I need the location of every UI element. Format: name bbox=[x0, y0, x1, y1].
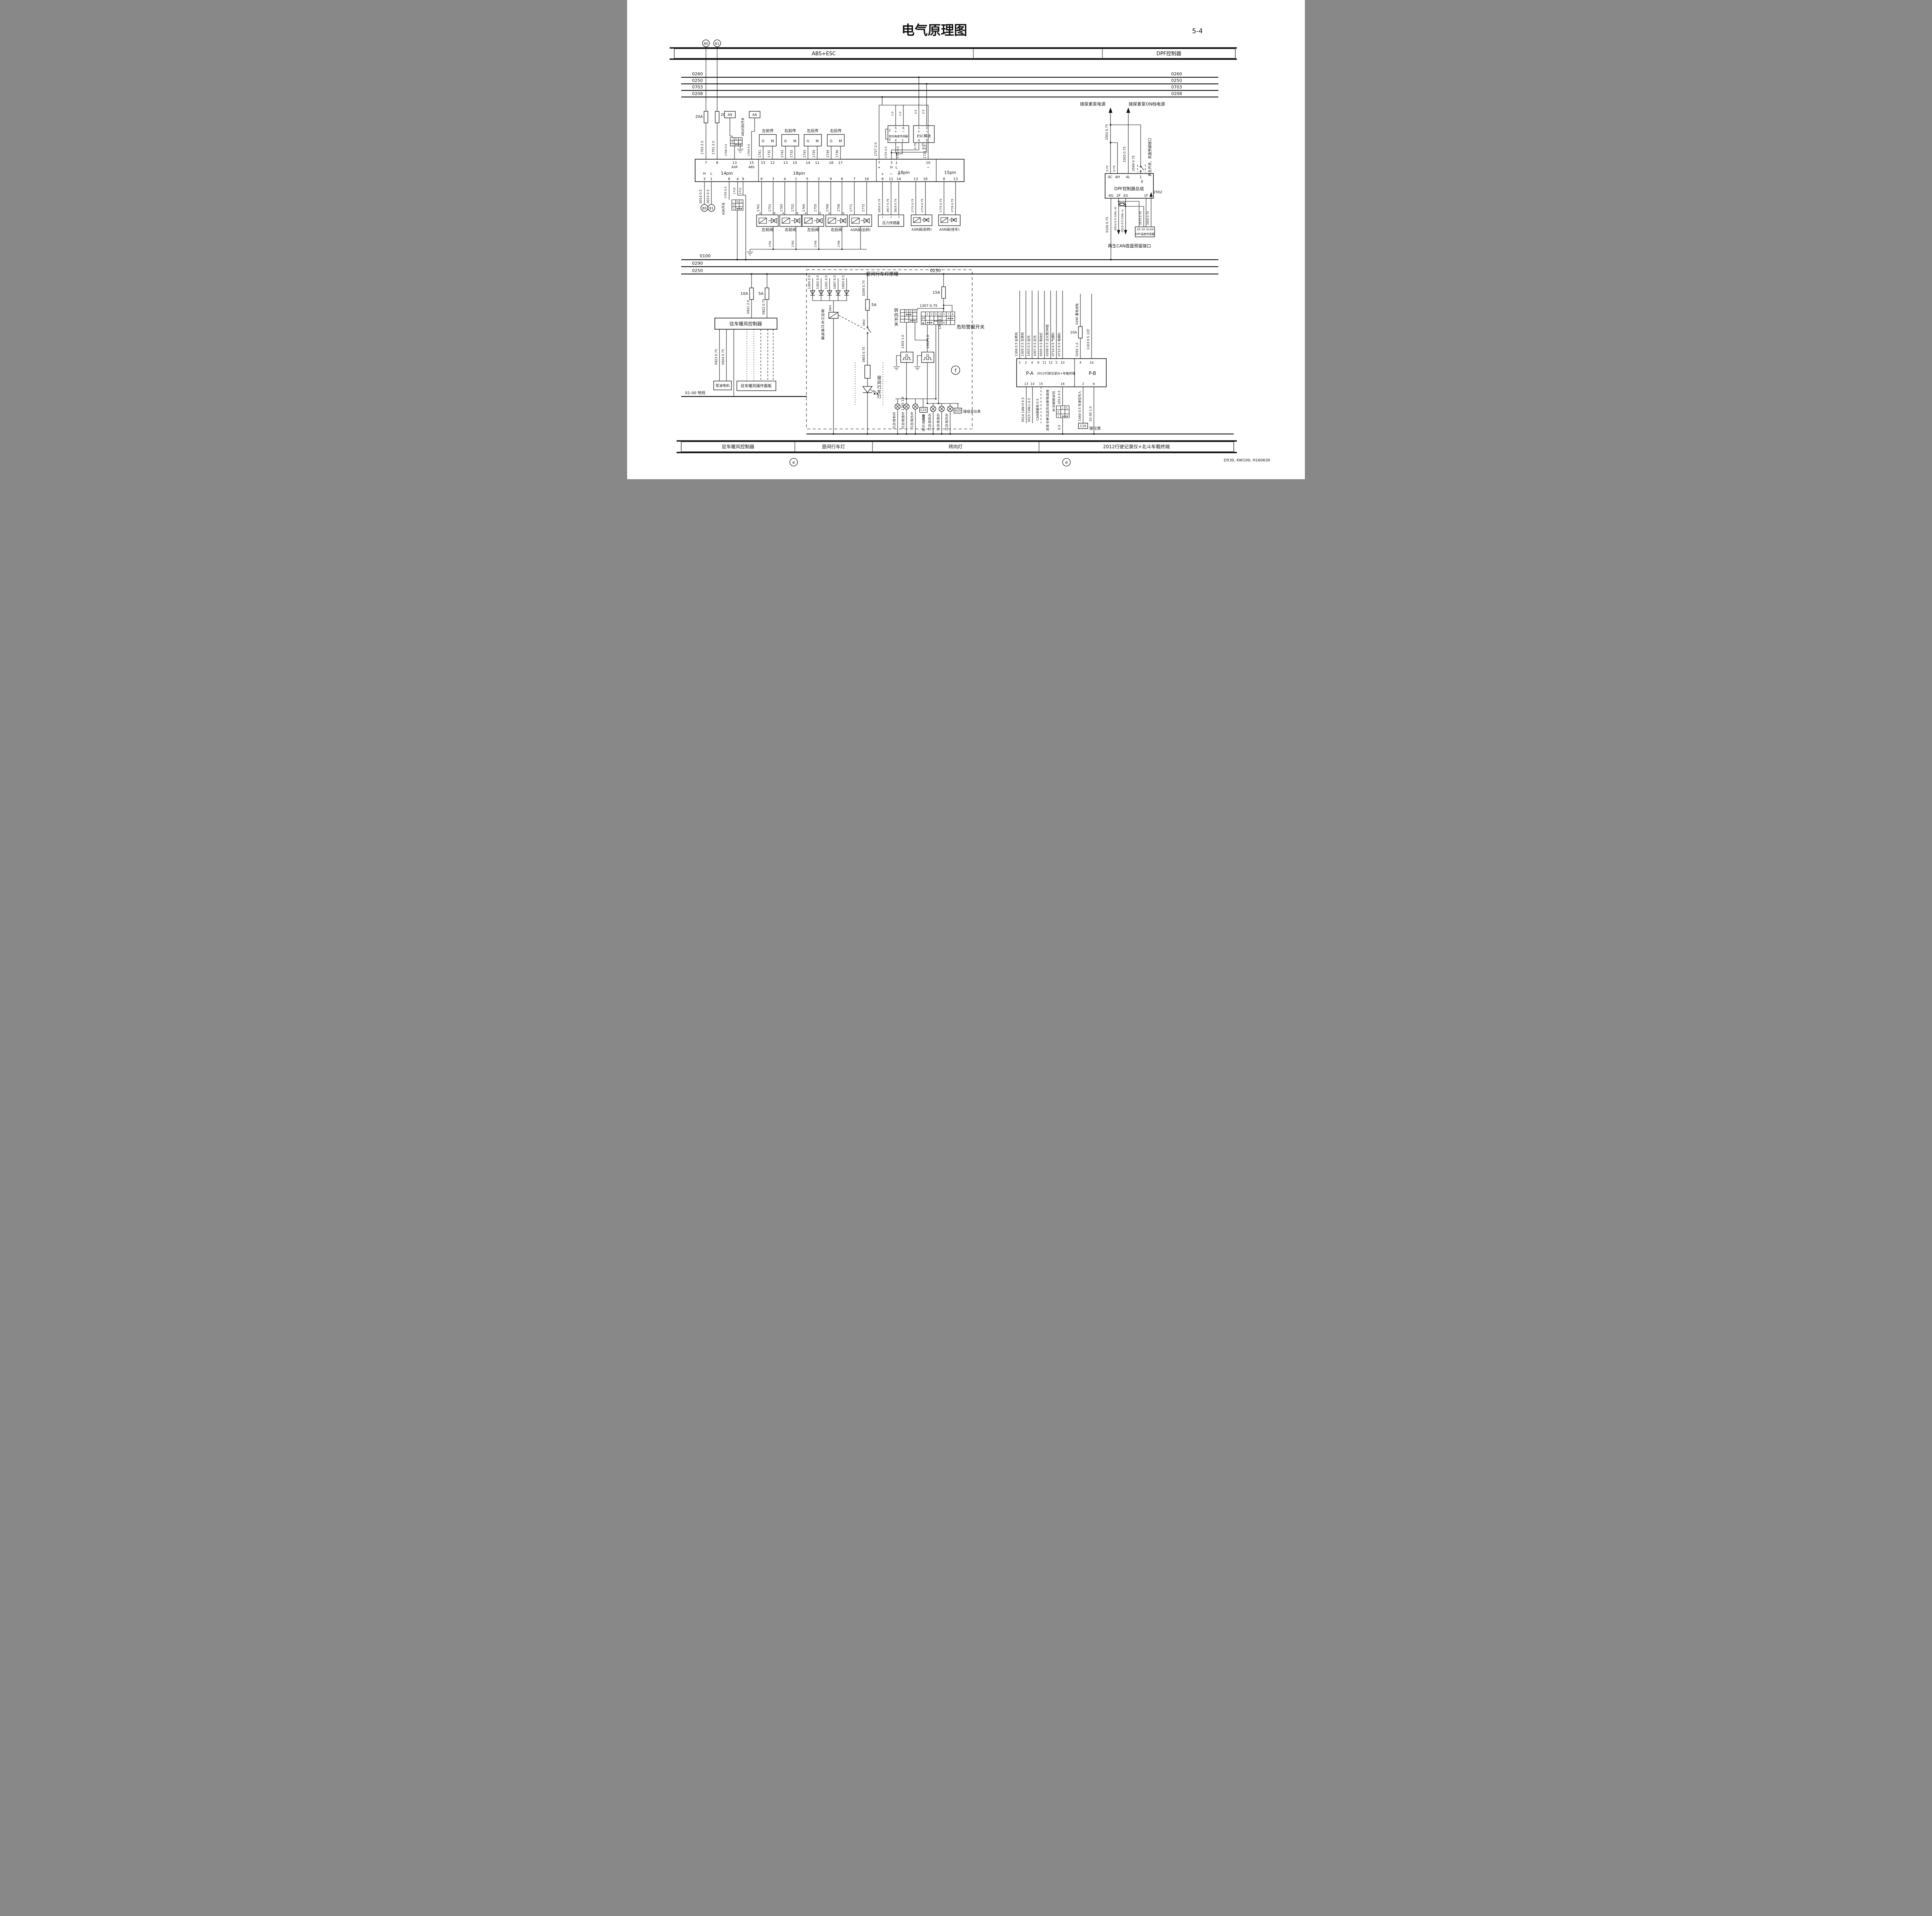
pin: 13 bbox=[913, 177, 918, 181]
pin: 15 bbox=[1039, 382, 1043, 386]
pin-g: G bbox=[830, 140, 833, 143]
wire-1791: 1791 bbox=[769, 240, 772, 247]
wire-0015: 0015 0.5 bbox=[706, 189, 710, 203]
dpf-section: 接尿素泵电源 接尿素泵ON档电源 2502 0.75 2503 0.75 0.7… bbox=[1080, 101, 1165, 260]
pa: P-A bbox=[1026, 371, 1034, 376]
sensor-name: 右前传 bbox=[784, 128, 796, 133]
pin: 13 bbox=[732, 161, 736, 165]
wire-0014: 0014 0.5 bbox=[699, 189, 702, 203]
pin-m: M bbox=[793, 140, 796, 143]
pin: 11 bbox=[1043, 361, 1046, 364]
asr-valve-trailer: 1775 0.75 1776 0.75 ASR阀(挂车) bbox=[939, 182, 960, 232]
e: E bbox=[774, 212, 776, 215]
connector-a29-label: A29 bbox=[955, 409, 961, 412]
pin: 12 bbox=[770, 161, 774, 165]
col: 3 bbox=[906, 310, 907, 313]
regen-switch bbox=[1138, 164, 1145, 174]
esc-module: 1 2 + − ESC模块 4 3 2.5 2.5 bbox=[913, 77, 934, 143]
pin: 9 bbox=[1037, 361, 1039, 364]
drl-dashed-box bbox=[806, 270, 972, 429]
wire-1103: 1103 0.5 小灯 bbox=[1086, 329, 1090, 350]
bus-0703-left: 0703 bbox=[692, 85, 703, 90]
e: E bbox=[820, 212, 821, 215]
name: ASR阀(前桥) bbox=[912, 227, 932, 232]
col: 1 bbox=[910, 310, 912, 313]
cell: 5 bbox=[1066, 407, 1068, 410]
footer-drl: 昼间行车灯 bbox=[822, 444, 845, 449]
wire-2012: 2012 0.5 bbox=[1058, 390, 1061, 404]
a: A bbox=[759, 212, 761, 215]
pin: 8 bbox=[841, 177, 843, 181]
wire: 1771 bbox=[849, 204, 853, 212]
wire-3801: 3801 bbox=[829, 305, 832, 311]
bus-0208-left: 0208 bbox=[692, 91, 703, 96]
warn-triangle: ▲ bbox=[922, 322, 924, 324]
cell: 1 bbox=[1058, 415, 1059, 417]
bottom-ground bbox=[806, 433, 1234, 435]
g: G bbox=[926, 354, 929, 358]
wire-0209: 0209 0.75 bbox=[862, 280, 866, 296]
wire: 1007 0.5 近光 bbox=[1033, 335, 1037, 356]
terminal-80: 80 bbox=[702, 207, 707, 211]
hazard-label: 危险警报开关 bbox=[957, 324, 985, 330]
wire: 0.75 bbox=[1106, 165, 1109, 172]
to-cluster-right: 接组合仪表 bbox=[963, 409, 981, 414]
wire: 1745 bbox=[803, 150, 806, 158]
pin: 17 bbox=[838, 161, 842, 165]
18pin: 18pin bbox=[793, 171, 805, 176]
wire-0922: 0922 0.75 bbox=[762, 299, 765, 315]
pin: 2 bbox=[1082, 382, 1084, 386]
pin: 6 bbox=[760, 177, 763, 181]
col: 3 bbox=[935, 313, 937, 316]
wire: 0505 0.5 制动灯 bbox=[1039, 332, 1043, 356]
wire-2503: 2503 0.75 bbox=[1123, 146, 1126, 162]
col: 7 bbox=[947, 313, 949, 316]
connector-c22-label: C22 bbox=[920, 408, 927, 412]
h: H bbox=[890, 166, 893, 170]
doc-code: D530, KW100, H160630 bbox=[1224, 458, 1270, 463]
cell: 0 bbox=[1058, 411, 1059, 413]
pin: 8 bbox=[716, 161, 718, 165]
wire: 0.75 bbox=[1113, 165, 1116, 172]
plus: + bbox=[881, 172, 884, 176]
wire: 1755 bbox=[814, 204, 817, 212]
dpf-temp-sensor: 03 02 01 04 DPF温度传感器 bbox=[1135, 227, 1155, 237]
pin: 4 bbox=[1031, 361, 1033, 364]
terminal-81-label: 81 bbox=[715, 42, 719, 46]
name: ASR阀(挂车) bbox=[939, 227, 959, 232]
pin: 01 bbox=[1146, 228, 1150, 231]
abs-valves: 1761 1751 1762 1752 1765 1755 1766 1756 … bbox=[747, 182, 872, 255]
wire-can-h: 0014 0.5 CAN—H bbox=[1114, 207, 1117, 230]
valve-name: 右前阀 bbox=[785, 227, 796, 232]
connector-c19-label: C19 bbox=[1080, 424, 1086, 428]
pin-e: E bbox=[1141, 180, 1143, 184]
pin: 2F bbox=[1117, 194, 1121, 198]
pin: 4 bbox=[784, 177, 786, 181]
pin-m: M bbox=[839, 140, 842, 143]
pin: 4H bbox=[1115, 175, 1120, 179]
plus: + bbox=[895, 130, 897, 133]
asr-valve-front: 1773 0.75 1774 0.75 ASR阀(前桥) bbox=[911, 182, 932, 232]
header-section-abs-esc: ABS+ESC bbox=[812, 51, 836, 57]
pin: 3 bbox=[890, 161, 893, 165]
pin-g: G bbox=[807, 140, 810, 143]
arrow-2502-label: 2502 bbox=[1153, 191, 1162, 194]
fuse-20a-2 bbox=[715, 111, 719, 123]
wire-2599: 2599 0.75 bbox=[1132, 155, 1135, 171]
col: 2 bbox=[931, 313, 932, 316]
ground-bus-0100: 0100 bbox=[681, 254, 1218, 260]
pin: 2 bbox=[925, 126, 927, 130]
wire-0923: 0923 0.75 bbox=[714, 349, 718, 365]
wire: 0715 0.5 电喇叭 bbox=[1057, 332, 1061, 356]
pin: 9 bbox=[742, 177, 744, 181]
wire: 1007 0.5 bbox=[833, 275, 837, 289]
drl-relay: 昼间行车灯继电器 bbox=[820, 309, 838, 434]
valve-name: 左后阀 bbox=[807, 227, 819, 232]
a: A bbox=[782, 212, 784, 215]
ground-wire-label: 01-00 地线 bbox=[685, 390, 705, 395]
pin: 15 bbox=[761, 161, 765, 165]
footer-heater: 驻车暖风控制器 bbox=[722, 444, 754, 449]
pin: 6 bbox=[902, 126, 904, 130]
wire: 1.0 bbox=[899, 112, 902, 116]
lamp-name: 右前转向灯 bbox=[928, 413, 932, 431]
pin: 02 bbox=[1142, 228, 1145, 231]
pin: 1F bbox=[1144, 194, 1148, 198]
pin: 16 bbox=[1061, 382, 1065, 386]
pin: 5 bbox=[806, 177, 808, 181]
e: E bbox=[843, 212, 844, 215]
pin: 16 bbox=[1090, 361, 1094, 364]
wire: 1773 0.75 bbox=[911, 199, 914, 213]
terminal-80-label: 80 bbox=[704, 42, 708, 46]
a: A bbox=[805, 212, 807, 215]
cell: 1 bbox=[740, 138, 741, 141]
col: 8 bbox=[952, 313, 953, 316]
wire: 1732 bbox=[790, 150, 793, 158]
pin-m: M bbox=[771, 140, 774, 143]
shield-note: 使用屏蔽双绞线时集中接地 bbox=[1046, 389, 1049, 431]
ground-symbol bbox=[914, 367, 920, 370]
pin: 7 bbox=[853, 177, 855, 181]
col: 4 bbox=[939, 313, 941, 316]
wire: 1766 bbox=[826, 204, 829, 212]
asr-switch-grid: 5 1 0 1 bbox=[732, 200, 743, 210]
ground-symbol bbox=[747, 252, 753, 255]
pin: 2 bbox=[1025, 361, 1027, 364]
wire: 2.5 bbox=[922, 110, 925, 114]
valve-name: 右后阀 bbox=[831, 227, 842, 232]
wire: 1752 bbox=[791, 204, 794, 212]
pin: 3 bbox=[925, 139, 927, 142]
minus: − bbox=[927, 166, 930, 170]
drl-relay-label: 昼间行车灯继电器 bbox=[820, 309, 825, 340]
top-bus-lines: 0260 0250 0703 0208 0260 0250 0703 0208 bbox=[681, 71, 1218, 97]
steering-angle-sensor: 5 6 + − 2 3 4 1 转向角度传感器 1.0 1.0 bbox=[886, 105, 909, 143]
wire-2502: 2502 0.75 bbox=[1105, 124, 1109, 140]
pin: 5 bbox=[1055, 361, 1057, 364]
asr: ASR bbox=[731, 165, 738, 169]
page-number: 5-4 bbox=[1192, 27, 1203, 35]
lamp-name: 左后转向灯 bbox=[910, 412, 914, 429]
lamp-name: 右后转向灯 bbox=[945, 413, 949, 431]
h: H bbox=[703, 172, 706, 176]
wire: 1775 0.75 bbox=[939, 199, 942, 213]
wire: 1742 bbox=[781, 150, 784, 158]
wire: 1201 0.5 bbox=[825, 275, 828, 289]
pin-m: M bbox=[816, 140, 819, 143]
name: ESC模块 bbox=[917, 134, 931, 138]
wire: 1765 bbox=[802, 204, 806, 212]
asr-switch-label: ASR开关 bbox=[721, 202, 725, 215]
footer-bar: 驻车暖风控制器 昼间行车灯 转向灯 2012行驶记录仪+北斗车载终端 e e D… bbox=[677, 441, 1270, 466]
marker-e1: e bbox=[793, 460, 795, 465]
cell: 0 bbox=[731, 141, 733, 143]
header-bar bbox=[674, 49, 1235, 58]
col: 2 bbox=[914, 310, 916, 313]
plus: + bbox=[918, 130, 920, 133]
recorder-name: 2012行驶记录仪+车载终端 bbox=[1037, 371, 1075, 375]
cell: 1 bbox=[1062, 407, 1063, 410]
wire-1706: 1706 0.5 bbox=[724, 144, 728, 156]
pin: 6 bbox=[728, 177, 730, 181]
pin: 9 bbox=[830, 177, 832, 181]
wire-0924: 0924 0.75 bbox=[721, 349, 725, 365]
wire: 1731 bbox=[767, 150, 771, 158]
footer-recorder: 2012行驶记录仪+北斗车载终端 bbox=[1103, 444, 1170, 449]
l: L bbox=[895, 166, 897, 170]
wire-1795: 1795 bbox=[814, 240, 817, 247]
pin: 4C bbox=[1108, 175, 1112, 179]
wire: 1305 0.5 左转向 bbox=[1020, 332, 1024, 356]
regen-can-note: 再生CAN底盘预留接口 bbox=[1108, 243, 1151, 248]
recorder-section: P-A 2012行驶记录仪+车载终端 P-B 1 2 4 9 11 12 5 1… bbox=[1014, 291, 1106, 434]
abs-ecu: 7 8 13 15 ASR ABS 14pin H L 3 1 6 4 9 15… bbox=[695, 159, 964, 182]
wire: 2818 0.75 bbox=[894, 199, 897, 213]
wire: 1756 bbox=[837, 204, 840, 212]
wire-05: 0.5 bbox=[1058, 425, 1061, 430]
bus-0260-right: 0260 bbox=[1171, 71, 1182, 77]
14pin: 14pin bbox=[721, 171, 733, 176]
pin: 18 bbox=[829, 161, 833, 165]
wire: 0714 0.5 气喇叭 bbox=[1051, 332, 1055, 356]
abs-flash-switch-label: ABS闪码开关 bbox=[741, 117, 745, 136]
urea-pump-power: 接尿素泵电源 bbox=[1080, 101, 1105, 107]
bus-0100-label: 0100 bbox=[700, 254, 711, 259]
cell: 5 bbox=[735, 138, 737, 141]
pin: 04 bbox=[1150, 228, 1154, 231]
pin: 11 bbox=[815, 161, 819, 165]
wire-1711: 1711 bbox=[739, 187, 742, 194]
pin: 2 bbox=[890, 216, 892, 219]
pin: 03 bbox=[1137, 228, 1141, 231]
pin: 3 bbox=[772, 177, 774, 181]
a: A bbox=[828, 212, 830, 215]
lower-bus-lines: 0290 0250 0250 bbox=[681, 261, 1218, 274]
bus-0250-left: 0250 bbox=[692, 78, 703, 83]
wire: 2816 0.75 bbox=[878, 199, 881, 213]
wheel-speed-sensors: 左前传 右前传 左后传 右后传 GM GM GM GM 1741 1731 17… bbox=[758, 128, 844, 159]
wire-speed-signal: 14A0 0.5 车速信号入 bbox=[1078, 391, 1082, 421]
parking-heater-section: 10A 5A 0921 2.0 0922 0.75 驻车暖风控制器 0923 0… bbox=[681, 273, 807, 396]
abs: ABS bbox=[748, 165, 755, 169]
pin: 3 bbox=[703, 177, 706, 181]
pump-motor-label: 泵油电机 bbox=[716, 383, 730, 388]
connector-a9-label: A9 bbox=[728, 113, 732, 117]
name: DPF温度传感器 bbox=[1136, 232, 1155, 236]
l: L bbox=[710, 172, 712, 176]
lamp-name: 右侧转向灯 bbox=[937, 413, 940, 431]
wire-can-h: 0014 CAN H 0.5 bbox=[1021, 397, 1025, 422]
terminal-81: 81 bbox=[709, 207, 713, 211]
pin: 2 bbox=[818, 177, 820, 181]
fuse-15a bbox=[942, 287, 946, 298]
marker-e2: e bbox=[1065, 460, 1068, 465]
wire: 1774 0.75 bbox=[921, 199, 924, 213]
wire-0292: 0292 1.0 bbox=[1075, 342, 1079, 356]
bus-0250-label: 0250 bbox=[692, 268, 703, 273]
lamp-name: 左前转向灯 bbox=[893, 412, 896, 429]
pin: 4 bbox=[736, 177, 739, 181]
wire-1710: 1710 bbox=[733, 187, 736, 194]
dpf-controller: 4C 4H 4L 1 E DPF控制器总成 4G 2F 2G 1F bbox=[1105, 174, 1153, 198]
pin: 4 bbox=[918, 139, 920, 142]
wire-1727: 1727 2.0 bbox=[874, 142, 878, 156]
wire-2573: 2573 0.75 bbox=[1139, 211, 1142, 225]
to-cluster-left: 接组合仪表 bbox=[922, 414, 925, 432]
pin: 1 bbox=[901, 139, 903, 142]
s: S bbox=[898, 172, 900, 176]
turn-signal-section: 15A 1301 1.5 1307 0.75 3 1 2 转向开关 1 2 3 … bbox=[893, 273, 985, 434]
flasher-left: G bbox=[893, 352, 913, 370]
bus-0250-right: 0250 bbox=[1171, 78, 1182, 83]
pin: 14 bbox=[1031, 382, 1034, 386]
bus-0703-right: 0703 bbox=[1171, 85, 1182, 90]
wire: 1003 0.5 远光 bbox=[1027, 335, 1031, 356]
name: 压力传感器 bbox=[882, 221, 900, 225]
wire-can-l: 0015 0.5 CAN—L bbox=[1121, 209, 1124, 232]
pin: 12 bbox=[1049, 361, 1053, 364]
name: DPF控制器总成 bbox=[1114, 186, 1144, 191]
fuse-5a-label: 5A bbox=[759, 292, 764, 296]
ground-symbol bbox=[737, 149, 743, 152]
wire-1703: 1703 2.5 bbox=[701, 141, 704, 155]
cell: 0 bbox=[733, 204, 735, 207]
wire-3802: 3802 bbox=[862, 319, 866, 326]
pin: 4L bbox=[1126, 175, 1130, 179]
drl-resistor bbox=[865, 365, 870, 378]
recorder-fuse-10a bbox=[1078, 327, 1082, 338]
wire: 1302 0.5 bbox=[816, 275, 820, 289]
heater-panel-label: 驻车暖风操作面板 bbox=[741, 383, 772, 388]
wire-1701: 1701 2.5 bbox=[712, 141, 715, 155]
pin-g: G bbox=[762, 140, 765, 143]
pb: P-B bbox=[1088, 371, 1096, 376]
name: 转向角度传感器 bbox=[889, 134, 908, 138]
off: OFF bbox=[921, 317, 925, 320]
minus: − bbox=[925, 130, 928, 133]
page-title: 电气原理图 bbox=[901, 23, 967, 38]
fuse-10a-label: 10A bbox=[740, 292, 748, 296]
drl-fuse-5a-label: 5A bbox=[871, 303, 876, 307]
fuse-10a bbox=[750, 288, 753, 299]
wire-1792: 1792 bbox=[791, 240, 794, 247]
to-meter-label: 接仪表 bbox=[1089, 426, 1101, 431]
wire: 1003 0.5 bbox=[842, 275, 845, 289]
drl-lamp-label: 昼间行车灯 bbox=[877, 376, 882, 399]
flasher-right: G bbox=[914, 352, 934, 370]
marker-f: f bbox=[955, 368, 957, 373]
bus-0250-mid-label: 0250 bbox=[930, 268, 941, 273]
pin: 1 bbox=[882, 216, 883, 219]
turn-switch-label: 转向开关 bbox=[894, 308, 899, 327]
wire-01-00: 01-00 1.0 bbox=[1089, 406, 1092, 421]
pin: 8 bbox=[943, 177, 945, 181]
wire-1302: 1302 1.0 bbox=[926, 335, 930, 349]
pin: 11 bbox=[889, 177, 893, 181]
pin: 13 bbox=[1024, 382, 1028, 386]
pin: 13 bbox=[783, 161, 787, 165]
alarm-switch-label: 应急报警开关 bbox=[1052, 391, 1056, 412]
pin: 4 bbox=[895, 139, 896, 142]
minus: − bbox=[889, 172, 893, 176]
footer-turn: 转向灯 bbox=[949, 444, 963, 449]
fuse-10a-label: 10A bbox=[1070, 331, 1077, 335]
pin: 4G bbox=[1109, 194, 1114, 198]
wire-1722: 1722 0.5 bbox=[896, 146, 900, 158]
e: E bbox=[797, 212, 798, 215]
abs-esc-section: 20A 20A 1703 2.5 1701 2.5 A9 A6 ABS闪码开关 … bbox=[695, 47, 964, 260]
wire-shield: CAN屏蔽地 0.5 bbox=[1036, 399, 1039, 420]
pin: 16 bbox=[923, 177, 928, 181]
wire-1725: 1725 0.5 bbox=[884, 146, 888, 158]
pin: 10 bbox=[793, 161, 797, 165]
cell: 5 bbox=[736, 201, 738, 203]
wire: 1776 0.75 bbox=[951, 199, 954, 213]
turn-switch: 3 1 2 转向开关 bbox=[894, 308, 917, 327]
wire-1307: 1307 0.75 bbox=[920, 304, 937, 308]
bus-0260-left: 0260 bbox=[692, 71, 703, 77]
up-arrows bbox=[1109, 107, 1130, 113]
plus: + bbox=[878, 166, 881, 170]
schematic-page: 电气原理图 5-4 80 81 ABS+ESC DPF控制器 0260 0250… bbox=[627, 0, 1305, 479]
wire-0100: 0100 0.75 bbox=[1105, 217, 1109, 233]
wire: 0208 0.5 点火锁ON档 bbox=[1045, 325, 1049, 356]
wire: 1761 bbox=[757, 204, 760, 212]
fuse-20a-1 bbox=[704, 111, 708, 123]
pin: 3 bbox=[889, 138, 891, 141]
wire: 1304 0.5 bbox=[808, 275, 811, 289]
wire: 2817 0.75 bbox=[886, 199, 889, 213]
pin: 10 bbox=[1061, 361, 1065, 364]
pin: 4 bbox=[1079, 361, 1081, 364]
pin: 14 bbox=[896, 177, 901, 181]
header-bar-heavy-rules bbox=[670, 48, 1237, 59]
sensor-name: 左前传 bbox=[762, 128, 774, 133]
pin: 2 bbox=[889, 129, 891, 132]
abs-flash-switch: 5 1 0 1 bbox=[730, 138, 743, 159]
bus-0290-label: 0290 bbox=[692, 261, 703, 266]
minus: − bbox=[902, 130, 905, 133]
wire: 1.0 bbox=[891, 112, 894, 116]
wire: 1741 bbox=[758, 150, 762, 158]
pin: 13 bbox=[953, 177, 957, 181]
col: 5 bbox=[943, 313, 945, 316]
wire: 1762 bbox=[780, 204, 783, 212]
